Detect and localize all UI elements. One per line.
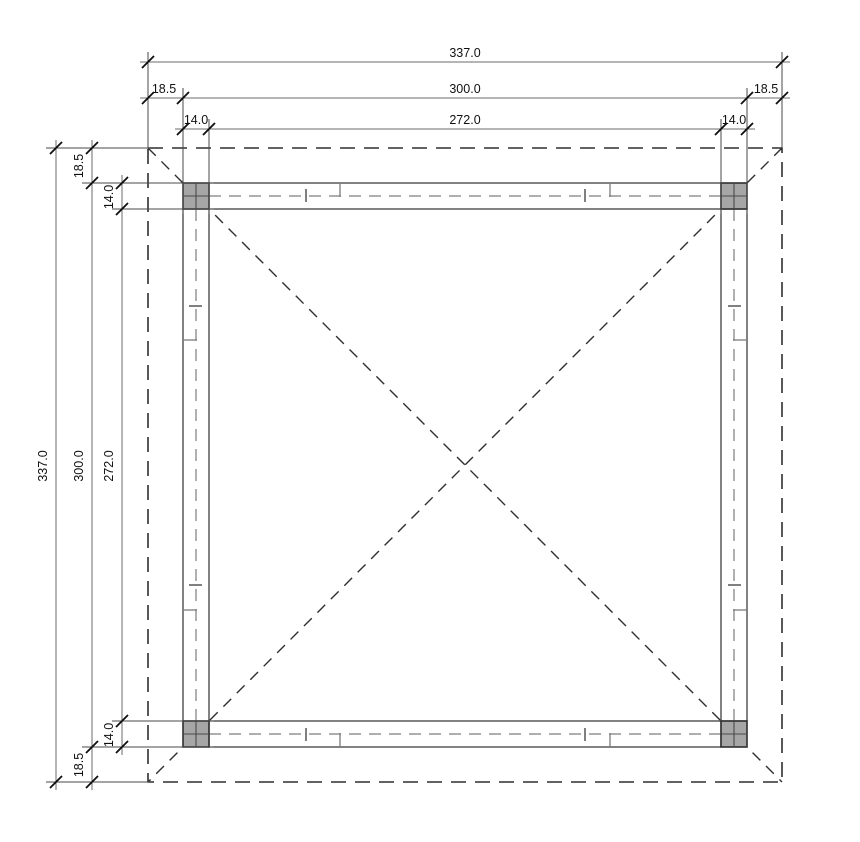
beam-top	[209, 183, 721, 209]
dim-top-right-post: 14.0	[722, 113, 746, 127]
structural-plan-svg: 337.0 18.5 300.0 18.5 14.0 272.0 14.0 33…	[0, 0, 860, 842]
dim-top-total: 337.0	[449, 46, 480, 60]
roof-diagonals	[148, 148, 782, 782]
post-bottom-left	[183, 721, 209, 747]
dim-top-span: 300.0	[449, 82, 480, 96]
post-bottom-right	[721, 721, 747, 747]
post-top-right	[721, 183, 747, 209]
dim-top-clear-span: 272.0	[449, 113, 480, 127]
dim-top-right-margin: 18.5	[754, 82, 778, 96]
dim-left-bottom-margin: 18.5	[72, 753, 86, 777]
dim-left-top-post: 14.0	[102, 185, 116, 209]
dim-left-top-margin: 18.5	[72, 154, 86, 178]
dim-left-total: 337.0	[36, 450, 50, 481]
dim-left-span: 300.0	[72, 450, 86, 481]
beam-left	[183, 209, 209, 721]
dim-top-left-post: 14.0	[184, 113, 208, 127]
dim-left-bottom-post: 14.0	[102, 723, 116, 747]
dim-top-left-margin: 18.5	[152, 82, 176, 96]
beam-bottom	[209, 721, 721, 747]
dim-left-clear-span: 272.0	[102, 450, 116, 481]
post-top-left	[183, 183, 209, 209]
beam-right	[721, 209, 747, 721]
plan-drawing-canvas: 337.0 18.5 300.0 18.5 14.0 272.0 14.0 33…	[0, 0, 860, 842]
